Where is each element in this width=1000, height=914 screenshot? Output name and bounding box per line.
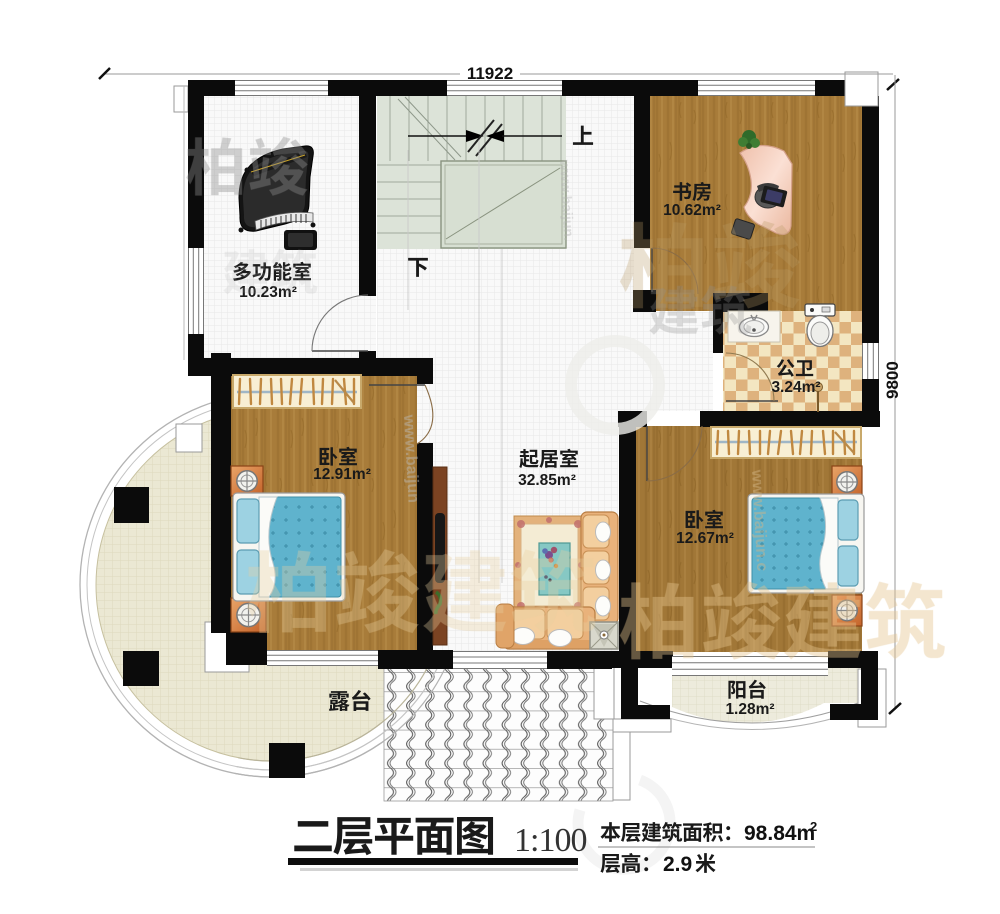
svg-text:10.62m²: 10.62m² bbox=[663, 202, 721, 219]
svg-text:32.85m²: 32.85m² bbox=[518, 472, 576, 489]
svg-text:3.24m²: 3.24m² bbox=[771, 379, 820, 396]
svg-text:12.91m²: 12.91m² bbox=[313, 466, 371, 483]
svg-text:11922: 11922 bbox=[467, 64, 513, 83]
svg-text:2.9: 2.9 bbox=[663, 853, 692, 876]
svg-text:1:100: 1:100 bbox=[514, 822, 586, 859]
svg-text:98.84m: 98.84m bbox=[744, 822, 815, 845]
svg-text:1.28m²: 1.28m² bbox=[725, 701, 774, 718]
svg-text:9800: 9800 bbox=[883, 361, 902, 399]
svg-text:2: 2 bbox=[810, 819, 817, 834]
svg-text:12.67m²: 12.67m² bbox=[676, 530, 734, 547]
